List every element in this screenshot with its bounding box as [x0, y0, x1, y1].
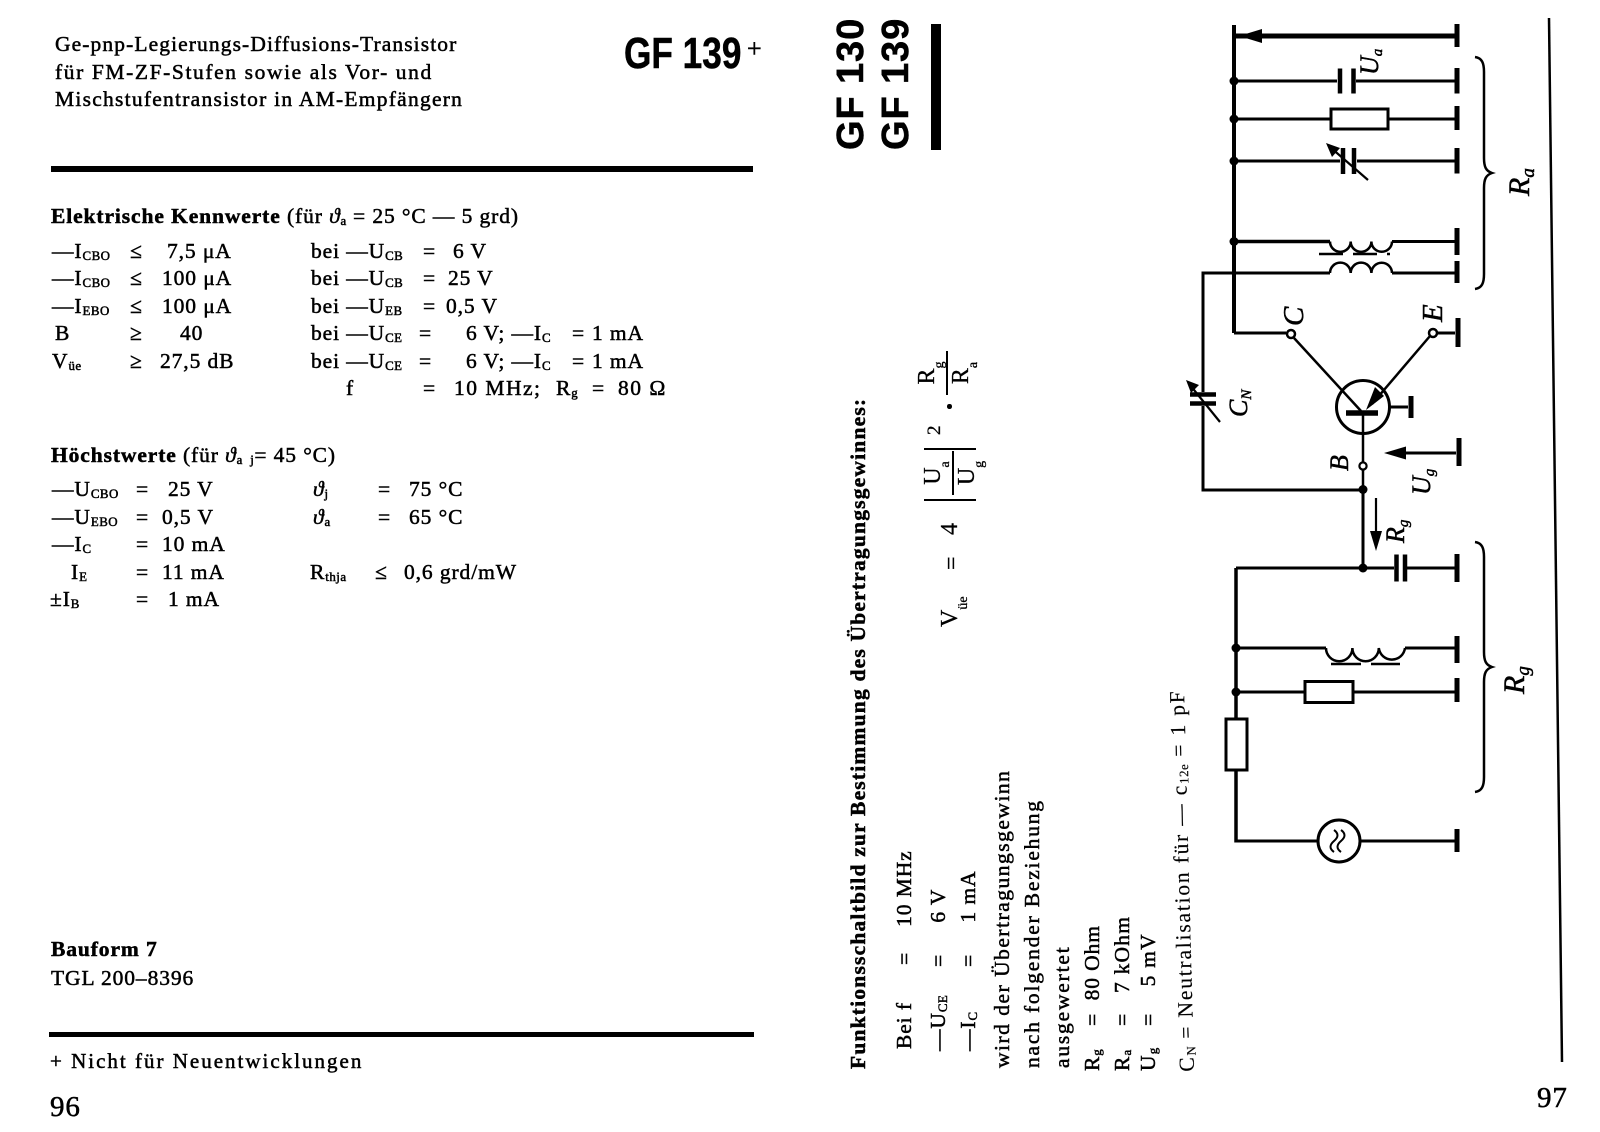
- svg-text:Ra: Ra: [1503, 168, 1539, 197]
- svg-text:Rg: Rg: [1381, 519, 1412, 544]
- svg-text:Ug: Ug: [1407, 468, 1438, 495]
- svg-text:B: B: [1325, 455, 1354, 471]
- svg-text:C: C: [1278, 306, 1310, 326]
- svg-text:Rg: Rg: [1498, 666, 1534, 695]
- svg-text:Ua: Ua: [1355, 49, 1386, 75]
- svg-text:E: E: [1417, 304, 1449, 323]
- svg-text:CN: CN: [1224, 389, 1255, 417]
